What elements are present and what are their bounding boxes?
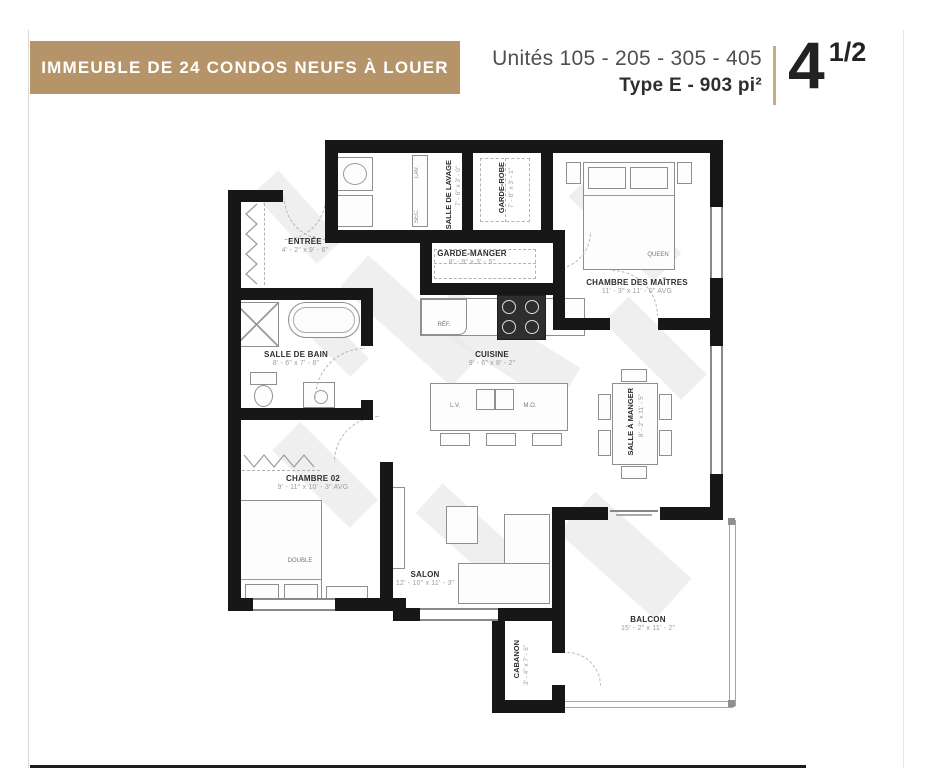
wall-salon-bottom-left — [393, 608, 420, 621]
accent-chair — [446, 506, 478, 544]
dining-chair — [621, 369, 647, 382]
railing-post — [728, 700, 735, 707]
toilet-bowl — [254, 385, 273, 407]
room-label-garde-manger: GARDE-MANGER 8' - 9" x 3' - 5" — [437, 249, 507, 266]
wall-entry-top — [228, 190, 283, 202]
room-dims: 9' - 6" x 8' - 2" — [469, 360, 515, 367]
bed-linen-line — [241, 579, 321, 580]
dining-chair — [659, 394, 672, 420]
wall-outer-left — [228, 190, 241, 610]
burner — [525, 300, 539, 314]
room-name: SALON — [396, 570, 454, 579]
room-label-salle-de-lavage: SALLE DE LAVAGE — [444, 160, 453, 229]
room-dims: 12' - 10" x 11' - 3" — [396, 580, 454, 587]
dining-chair — [659, 430, 672, 456]
dining-chair — [598, 430, 611, 456]
type-line: Type E - 903 pi² — [440, 75, 762, 97]
dining-chair — [621, 466, 647, 479]
dining-table — [612, 383, 658, 465]
wall-salon-east — [552, 507, 565, 608]
wall-master-south-east — [658, 318, 710, 330]
wall-laundry-bottom — [325, 230, 541, 243]
balcony-railing-right — [729, 520, 736, 706]
double-bed-label: DOUBLE — [288, 558, 313, 564]
room-label-chambre-maitres: CHAMBRE DES MAÎTRES 11' - 3" x 11' - 0" … — [586, 278, 688, 295]
wall-top — [325, 140, 723, 153]
wall-master-west — [553, 230, 565, 330]
bathtub — [288, 302, 360, 338]
room-label-cabanon: CABANON — [512, 640, 521, 678]
wall-chambre-bottom-left — [228, 598, 255, 611]
wall-kitchen-top — [420, 283, 560, 295]
room-dims: 8' - 9" x 3' - 5" — [437, 259, 507, 266]
microwave-label: M.O. — [524, 403, 537, 409]
wall-cabanon-left — [492, 608, 505, 713]
wall-garde-robe-right — [541, 140, 553, 243]
wall-right-middle — [710, 278, 723, 346]
window-salon — [420, 608, 498, 621]
banner-text: IMMEUBLE DE 24 CONDOS NEUFS À LOUER — [41, 58, 449, 78]
room-name: CUISINE — [469, 350, 515, 359]
dryer-label: SEC. — [414, 209, 420, 223]
bathtub-inner — [293, 307, 355, 333]
room-label-salle-a-manger: SALLE À MANGER — [626, 388, 635, 456]
wall-bath-top — [228, 288, 373, 300]
island-stool — [532, 433, 562, 446]
queen-bed-label: QUEEN — [647, 252, 668, 258]
railing-post — [728, 518, 735, 525]
room-dims: 8' - 6" x 7' - 8" — [264, 360, 328, 367]
entry-closet-zigzag — [243, 202, 261, 288]
wall-right-upper — [710, 140, 723, 207]
floor-plan: LAV. SEC. RÉF. L.V. M.O. — [0, 0, 934, 768]
pillow — [630, 167, 668, 189]
island-sink — [495, 389, 514, 410]
washer-label: LAV. — [414, 166, 420, 178]
burner — [502, 320, 516, 334]
room-label-cuisine: CUISINE 9' - 6" x 8' - 2" — [469, 350, 515, 367]
room-name: CHAMBRE 02 — [278, 474, 349, 483]
wall-laundry-closet-divider — [462, 153, 473, 230]
room-name: CHAMBRE DES MAÎTRES — [586, 278, 688, 287]
dining-chair — [598, 394, 611, 420]
room-dims: 7' - 8" x 3' - 1" — [508, 168, 515, 208]
chambre-closet-front — [242, 470, 320, 471]
room-label-garde-robe: GARDE-ROBE — [497, 162, 506, 213]
room-name: SALLE DE BAIN — [264, 350, 328, 359]
room-label-salle-de-bain: SALLE DE BAIN 8' - 6" x 7' - 8" — [264, 350, 328, 367]
cabanon-door-arc — [567, 652, 601, 686]
island-sink — [476, 389, 495, 410]
room-dims: 9' - 11" x 10' - 3" AVG — [278, 484, 349, 491]
room-dims: 11' - 3" x 11' - 0" AVG — [586, 288, 688, 295]
unit-size-fraction: 1/2 — [829, 37, 867, 68]
header-divider — [773, 46, 776, 105]
wall-laundry-left — [325, 140, 338, 243]
wall-bath-right-upper — [361, 288, 373, 346]
units-line: Unités 105 - 205 - 305 - 405 — [440, 47, 762, 71]
wall-cabanon-right-lower — [552, 685, 565, 713]
room-name: BALCON — [621, 615, 675, 624]
stove — [497, 295, 546, 340]
room-label-balcon: BALCON 15' - 2" x 11' - 2" — [621, 615, 675, 632]
toilet-tank — [250, 372, 277, 385]
chambre02-door-arc — [334, 416, 380, 462]
wall-master-south-west — [565, 318, 610, 330]
window-chambre02 — [253, 598, 335, 611]
chambre-closet-zigzag — [242, 452, 320, 470]
burner — [502, 300, 516, 314]
room-label-entree: ENTRÉE 4' - 2" x 9' - 6" — [282, 237, 328, 254]
room-dims: 8' - 2" x 11' - 5" — [638, 394, 645, 437]
wall-patio-right — [660, 507, 723, 520]
refrigerator — [421, 299, 467, 335]
wall-cabanon-right-upper — [552, 608, 565, 653]
nightstand — [677, 162, 692, 184]
sofa-section-horizontal — [458, 563, 550, 604]
window-dining — [710, 346, 723, 474]
burner — [525, 320, 539, 334]
balcony-railing-bottom — [565, 701, 733, 708]
room-dims: 7' - 6" x 3' - 0" — [455, 166, 462, 206]
pillow — [588, 167, 626, 189]
unit-size: 4 1/2 — [788, 34, 866, 97]
refrigerator-label: RÉF. — [437, 322, 450, 328]
room-label-salon: SALON 12' - 10" x 11' - 3" — [396, 570, 454, 587]
room-label-chambre02: CHAMBRE 02 9' - 11" x 10' - 3" AVG — [278, 474, 349, 491]
wall-bath-bottom — [228, 408, 373, 420]
room-dims: 3' - 4" x 7' - 6" — [523, 645, 530, 685]
banner: IMMEUBLE DE 24 CONDOS NEUFS À LOUER — [30, 41, 460, 94]
patio-door-panel — [616, 514, 652, 516]
room-dims: 15' - 2" x 11' - 2" — [621, 625, 675, 632]
unit-size-number: 4 — [788, 34, 825, 97]
patio-door-panel — [610, 510, 658, 512]
washer — [337, 157, 373, 191]
dishwasher-label: L.V. — [450, 403, 460, 409]
dryer — [337, 195, 373, 227]
room-dims: 4' - 2" x 9' - 6" — [282, 247, 328, 254]
bed-linen-line — [584, 195, 674, 196]
island-stool — [440, 433, 470, 446]
entry-closet-front — [264, 203, 265, 285]
island-stool — [486, 433, 516, 446]
tv-console — [392, 487, 405, 569]
nightstand — [566, 162, 581, 184]
washer-drum — [343, 163, 367, 185]
room-name: ENTRÉE — [282, 237, 328, 246]
wall-chambre-bottom-right — [335, 598, 393, 611]
wall-chambre-salon — [380, 462, 393, 610]
room-name: GARDE-MANGER — [437, 249, 507, 258]
window-master-bedroom — [710, 207, 723, 278]
brochure-page: IMMEUBLE DE 24 CONDOS NEUFS À LOUER Unit… — [0, 0, 934, 768]
